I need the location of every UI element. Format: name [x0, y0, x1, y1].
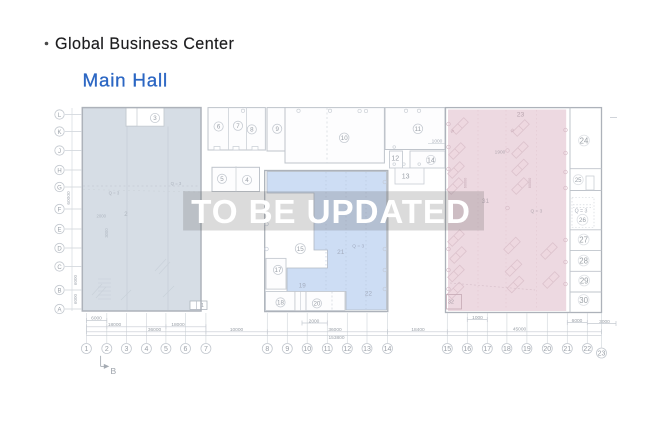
svg-text:5: 5 [164, 346, 168, 353]
svg-text:5: 5 [220, 176, 224, 183]
svg-text:13: 13 [363, 346, 371, 353]
svg-text:12: 12 [343, 346, 351, 353]
svg-text:1000: 1000 [472, 315, 483, 321]
svg-text:24: 24 [580, 136, 589, 145]
svg-text:45000: 45000 [513, 327, 527, 333]
svg-text:6000: 6000 [73, 293, 78, 304]
svg-text:27: 27 [579, 235, 588, 244]
svg-text:32: 32 [448, 300, 454, 306]
svg-text:36000: 36000 [328, 327, 342, 333]
svg-text:8: 8 [265, 346, 269, 353]
svg-text:10: 10 [303, 346, 311, 353]
svg-text:15: 15 [297, 246, 304, 253]
svg-text:Q = 3: Q = 3 [352, 243, 364, 249]
svg-text:60000: 60000 [66, 191, 72, 205]
svg-text:Q = 3: Q = 3 [109, 191, 120, 196]
svg-text:18: 18 [277, 300, 284, 307]
svg-text:36000: 36000 [148, 327, 162, 333]
svg-text:18000: 18000 [108, 322, 122, 328]
svg-text:19: 19 [523, 346, 531, 353]
svg-text:2: 2 [105, 346, 109, 353]
svg-text:Q = 3: Q = 3 [530, 208, 542, 214]
svg-text:7: 7 [236, 123, 240, 130]
svg-text:60000: 60000 [464, 178, 468, 189]
svg-text:13: 13 [402, 173, 410, 180]
svg-text:18000: 18000 [171, 322, 185, 328]
svg-text:1900: 1900 [495, 149, 506, 155]
svg-text:C: C [57, 265, 62, 271]
svg-text:D: D [57, 246, 62, 252]
svg-text:TO BE UPDATED: TO BE UPDATED [191, 194, 471, 231]
svg-text:4: 4 [245, 177, 249, 184]
svg-text:22: 22 [365, 291, 373, 298]
svg-text:21: 21 [563, 346, 571, 353]
svg-text:Main Hall: Main Hall [83, 70, 168, 91]
svg-text:B: B [111, 366, 117, 376]
svg-text:10: 10 [341, 135, 348, 142]
svg-text:60000: 60000 [528, 178, 532, 189]
svg-text:2000: 2000 [97, 214, 107, 219]
svg-text:7: 7 [204, 346, 208, 353]
svg-text:29: 29 [580, 276, 589, 285]
svg-text:17: 17 [275, 267, 282, 274]
svg-text:14: 14 [384, 346, 392, 353]
svg-text:17: 17 [483, 346, 491, 353]
svg-text:16: 16 [463, 346, 471, 353]
svg-text:18400: 18400 [411, 327, 425, 333]
svg-text:B: B [57, 288, 61, 294]
svg-text:Q = 3: Q = 3 [575, 209, 588, 215]
svg-text:26: 26 [579, 217, 586, 224]
svg-text:20: 20 [313, 301, 320, 308]
svg-text:K: K [57, 130, 61, 136]
svg-text:30: 30 [579, 296, 588, 305]
svg-text:15: 15 [443, 346, 451, 353]
svg-text:J: J [58, 149, 61, 155]
svg-text:6000: 6000 [91, 315, 102, 321]
svg-text:6000: 6000 [572, 318, 583, 324]
svg-text:9: 9 [285, 346, 289, 353]
svg-text:6: 6 [217, 124, 221, 131]
svg-text:4: 4 [144, 346, 148, 353]
svg-text:11: 11 [324, 346, 331, 353]
svg-text:153800: 153800 [328, 335, 344, 341]
svg-text:10000: 10000 [230, 327, 244, 333]
svg-text:22: 22 [583, 346, 591, 353]
svg-text:23: 23 [598, 351, 606, 358]
svg-text:3: 3 [124, 346, 128, 353]
svg-text:20: 20 [543, 346, 551, 353]
svg-text:A: A [57, 307, 61, 313]
svg-text:21: 21 [337, 249, 345, 256]
svg-text:6: 6 [184, 346, 188, 353]
svg-text:28: 28 [579, 256, 588, 265]
svg-text:3: 3 [153, 115, 157, 122]
svg-text:2000: 2000 [309, 318, 320, 324]
svg-text:1: 1 [84, 346, 88, 353]
svg-text:Global Business Center: Global Business Center [55, 35, 234, 53]
svg-text:12: 12 [391, 155, 399, 162]
svg-text:F: F [58, 207, 62, 213]
svg-text:11: 11 [415, 126, 422, 133]
svg-text:8: 8 [250, 127, 254, 134]
svg-text:25: 25 [575, 178, 582, 184]
svg-text:19: 19 [299, 283, 307, 290]
svg-text:Q = 3: Q = 3 [171, 181, 182, 186]
svg-text:9: 9 [275, 126, 279, 133]
svg-text:3000: 3000 [599, 319, 610, 325]
svg-text:3000: 3000 [104, 228, 109, 238]
svg-text:18: 18 [503, 346, 511, 353]
svg-text:6000: 6000 [73, 274, 78, 285]
svg-text:H: H [57, 168, 61, 174]
svg-text:23: 23 [517, 112, 525, 119]
svg-text:14: 14 [427, 157, 435, 164]
svg-text:G: G [57, 185, 62, 191]
svg-text:E: E [57, 227, 61, 233]
